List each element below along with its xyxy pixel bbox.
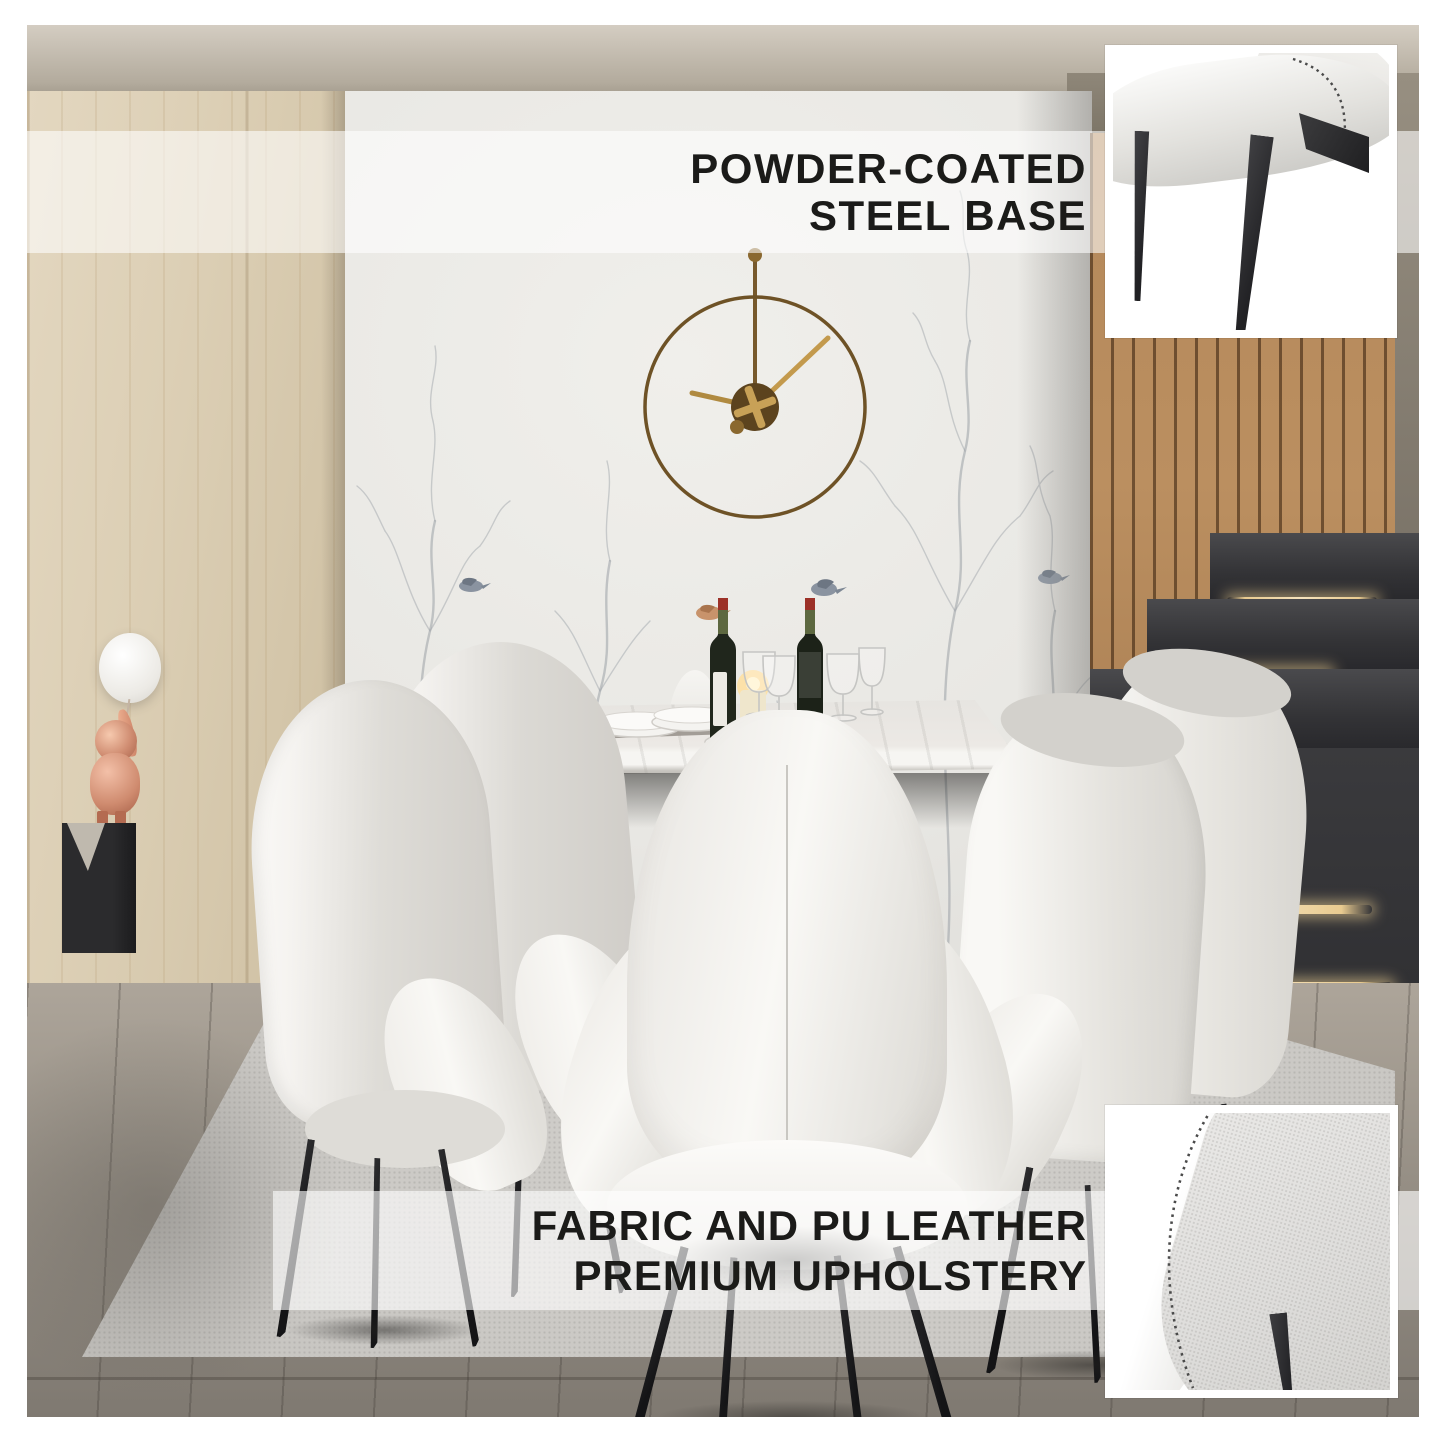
balloon-lamp — [99, 633, 161, 703]
figurine-pedestal — [62, 823, 136, 953]
product-marketing-image: POWDER-COATED STEEL BASE FABRIC AND PU L… — [0, 0, 1445, 1445]
balloon-figurine — [57, 625, 177, 955]
chair-seat — [305, 1090, 505, 1168]
steel-base-inset — [1105, 45, 1397, 338]
upholstery-line1: FABRIC AND PU LEATHER — [532, 1202, 1087, 1249]
dining-room-photo: POWDER-COATED STEEL BASE FABRIC AND PU L… — [27, 25, 1419, 1417]
chair-floor-shadow — [612, 1395, 972, 1417]
chair-back-seam — [786, 765, 788, 1165]
stair-step — [1210, 533, 1419, 607]
figurine-body — [90, 753, 140, 815]
steel-base-line2: STEEL BASE — [809, 192, 1087, 239]
steel-base-inset-image — [1113, 53, 1389, 330]
upholstery-inset-image — [1113, 1113, 1390, 1390]
chair-floor-shadow — [255, 1310, 515, 1350]
upholstery-line2: PREMIUM UPHOLSTERY — [574, 1252, 1087, 1299]
upholstery-inset — [1105, 1105, 1398, 1398]
inset-stitching — [1133, 1113, 1273, 1390]
steel-base-line1: POWDER-COATED — [690, 145, 1087, 192]
wall-clock — [625, 247, 885, 557]
